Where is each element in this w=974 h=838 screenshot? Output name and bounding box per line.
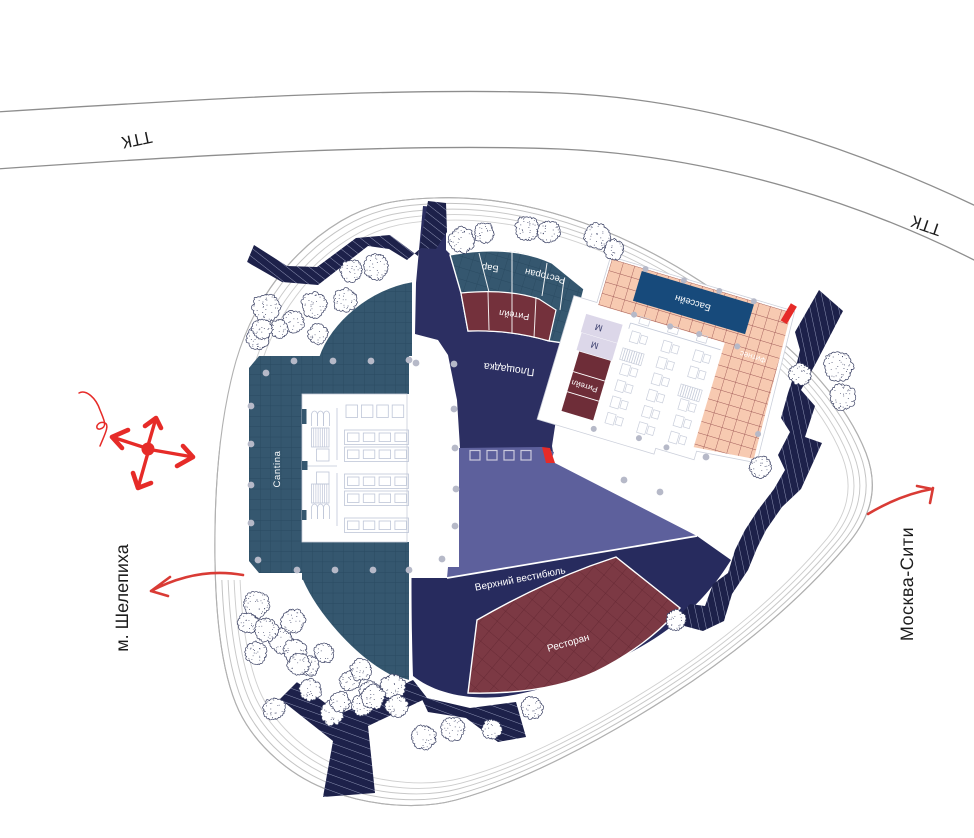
svg-text:Cantina: Cantina [272, 450, 283, 487]
svg-text:Москва-Сити: Москва-Сити [897, 527, 917, 641]
svg-text:м. Шелепиха: м. Шелепиха [112, 543, 132, 651]
svg-text:Бар: Бар [481, 261, 499, 274]
